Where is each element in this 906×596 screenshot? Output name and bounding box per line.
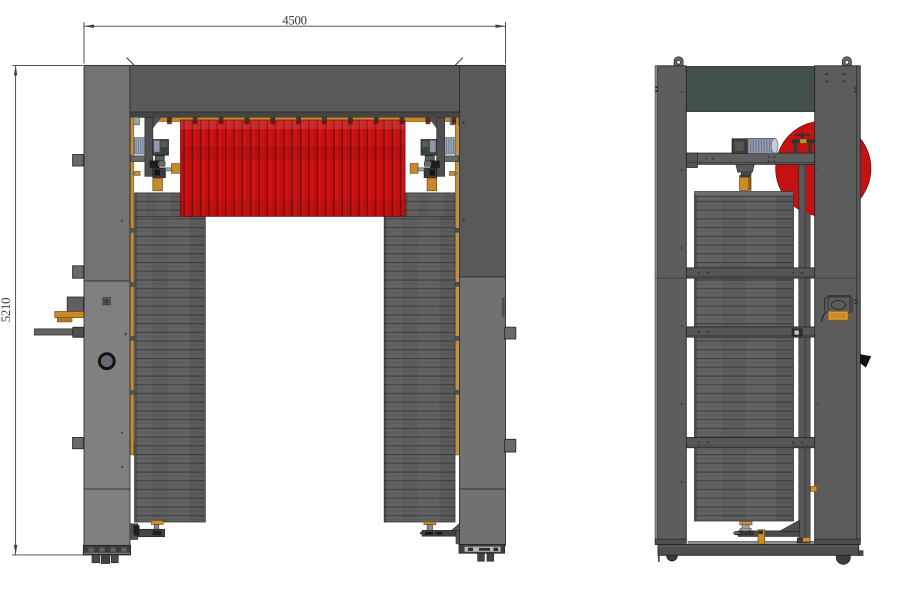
- svg-text:5210: 5210: [0, 298, 13, 322]
- svg-text:4500: 4500: [282, 13, 306, 27]
